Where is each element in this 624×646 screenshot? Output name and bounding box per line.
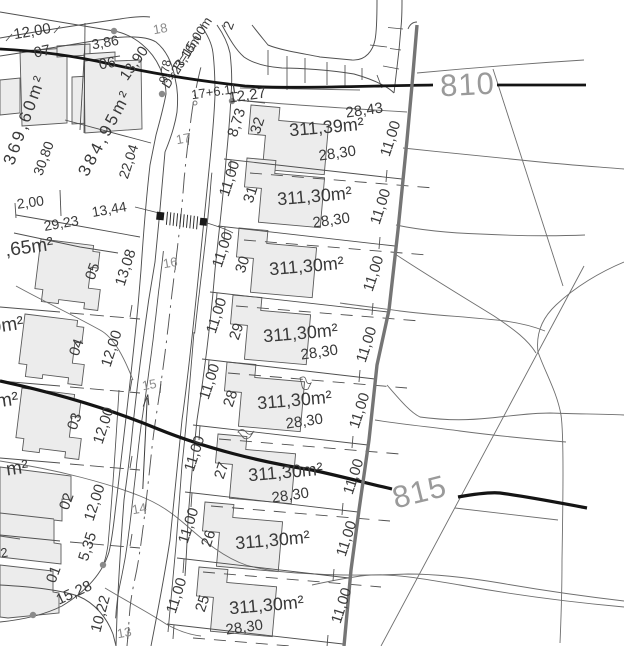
svg-text:15: 15 (141, 376, 158, 393)
svg-text:17: 17 (175, 130, 192, 147)
svg-text:14: 14 (131, 500, 148, 517)
svg-text:13: 13 (116, 624, 133, 641)
svg-text:07: 07 (32, 42, 52, 62)
svg-text:m²: m² (0, 389, 20, 413)
svg-text:06: 06 (98, 54, 117, 74)
svg-text:18: 18 (152, 20, 169, 37)
svg-text:m²: m² (5, 457, 30, 481)
svg-text:810: 810 (439, 66, 495, 104)
svg-text:16: 16 (162, 254, 179, 271)
